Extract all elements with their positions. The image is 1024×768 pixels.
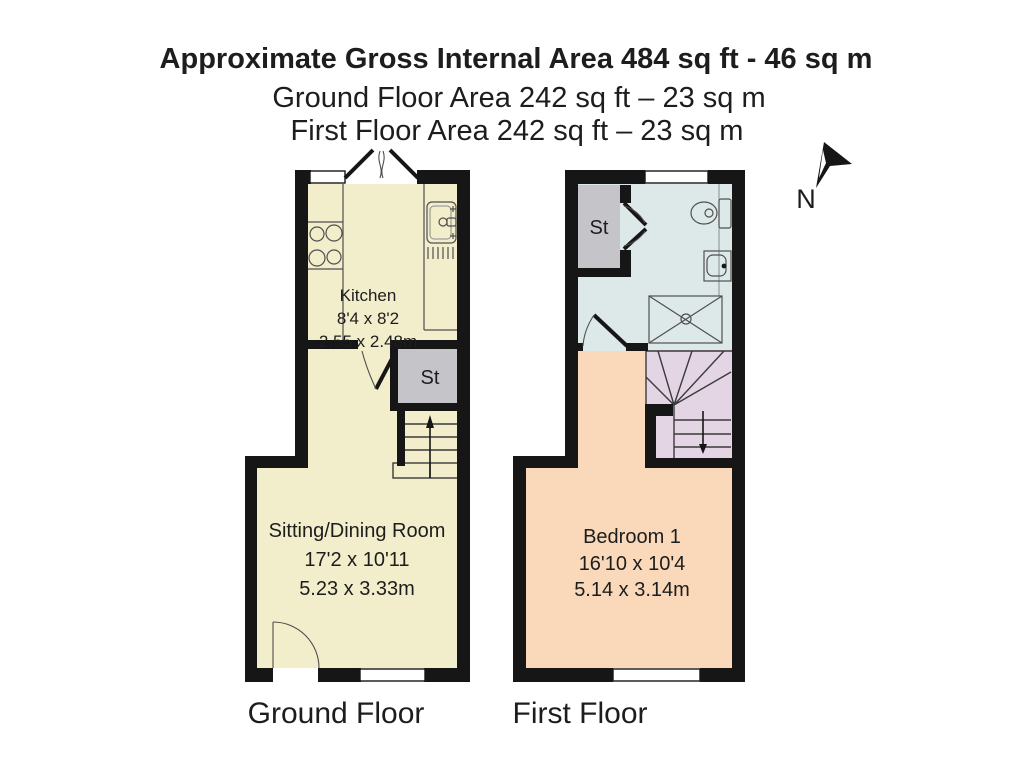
gf-top-window: [310, 171, 345, 183]
kitchen-label: Kitchen: [340, 286, 397, 305]
floorplan-page: Approximate Gross Internal Area 484 sq f…: [0, 0, 1024, 768]
first-floor-plan: St Bedroom 1 16'10 x 10'4 5.14 x 3.14m F…: [513, 170, 746, 730]
bedroom-dims-metric: 5.14 x 3.14m: [574, 579, 690, 601]
bedroom-dims-imperial: 16'10 x 10'4: [579, 553, 686, 575]
north-label: N: [796, 184, 816, 214]
bedroom-label: Bedroom 1: [583, 526, 681, 548]
kitchen-dims-metric: 2.55 x 2.48m: [319, 332, 417, 351]
ground-floor-caption: Ground Floor: [248, 697, 425, 730]
kitchen-dims-imperial: 8'4 x 8'2: [337, 309, 399, 328]
gf-bottom-window: [360, 669, 425, 681]
page-title: Approximate Gross Internal Area 484 sq f…: [160, 43, 873, 75]
ff-top-window: [645, 171, 708, 183]
ground-floor-area-subtitle: Ground Floor Area 242 sq ft – 23 sq m: [272, 82, 765, 114]
sitting-dining-room-label: Sitting/Dining Room: [269, 520, 446, 542]
header: Approximate Gross Internal Area 484 sq f…: [160, 43, 873, 147]
sitting-dining-dims-imperial: 17'2 x 10'11: [304, 549, 409, 571]
ff-storage-label: St: [590, 217, 609, 239]
french-doors: [345, 150, 418, 178]
ground-floor-plan: Kitchen 8'4 x 8'2 2.55 x 2.48m St Sittin…: [245, 150, 470, 730]
first-floor-caption: First Floor: [513, 697, 648, 730]
compass: N: [796, 142, 852, 214]
floorplan-drawing: Approximate Gross Internal Area 484 sq f…: [0, 0, 1024, 768]
sitting-dining-dims-metric: 5.23 x 3.33m: [299, 578, 415, 600]
first-floor-area-subtitle: First Floor Area 242 sq ft – 23 sq m: [291, 115, 744, 147]
gf-storage-label: St: [421, 367, 440, 389]
ff-bottom-window: [613, 669, 700, 681]
